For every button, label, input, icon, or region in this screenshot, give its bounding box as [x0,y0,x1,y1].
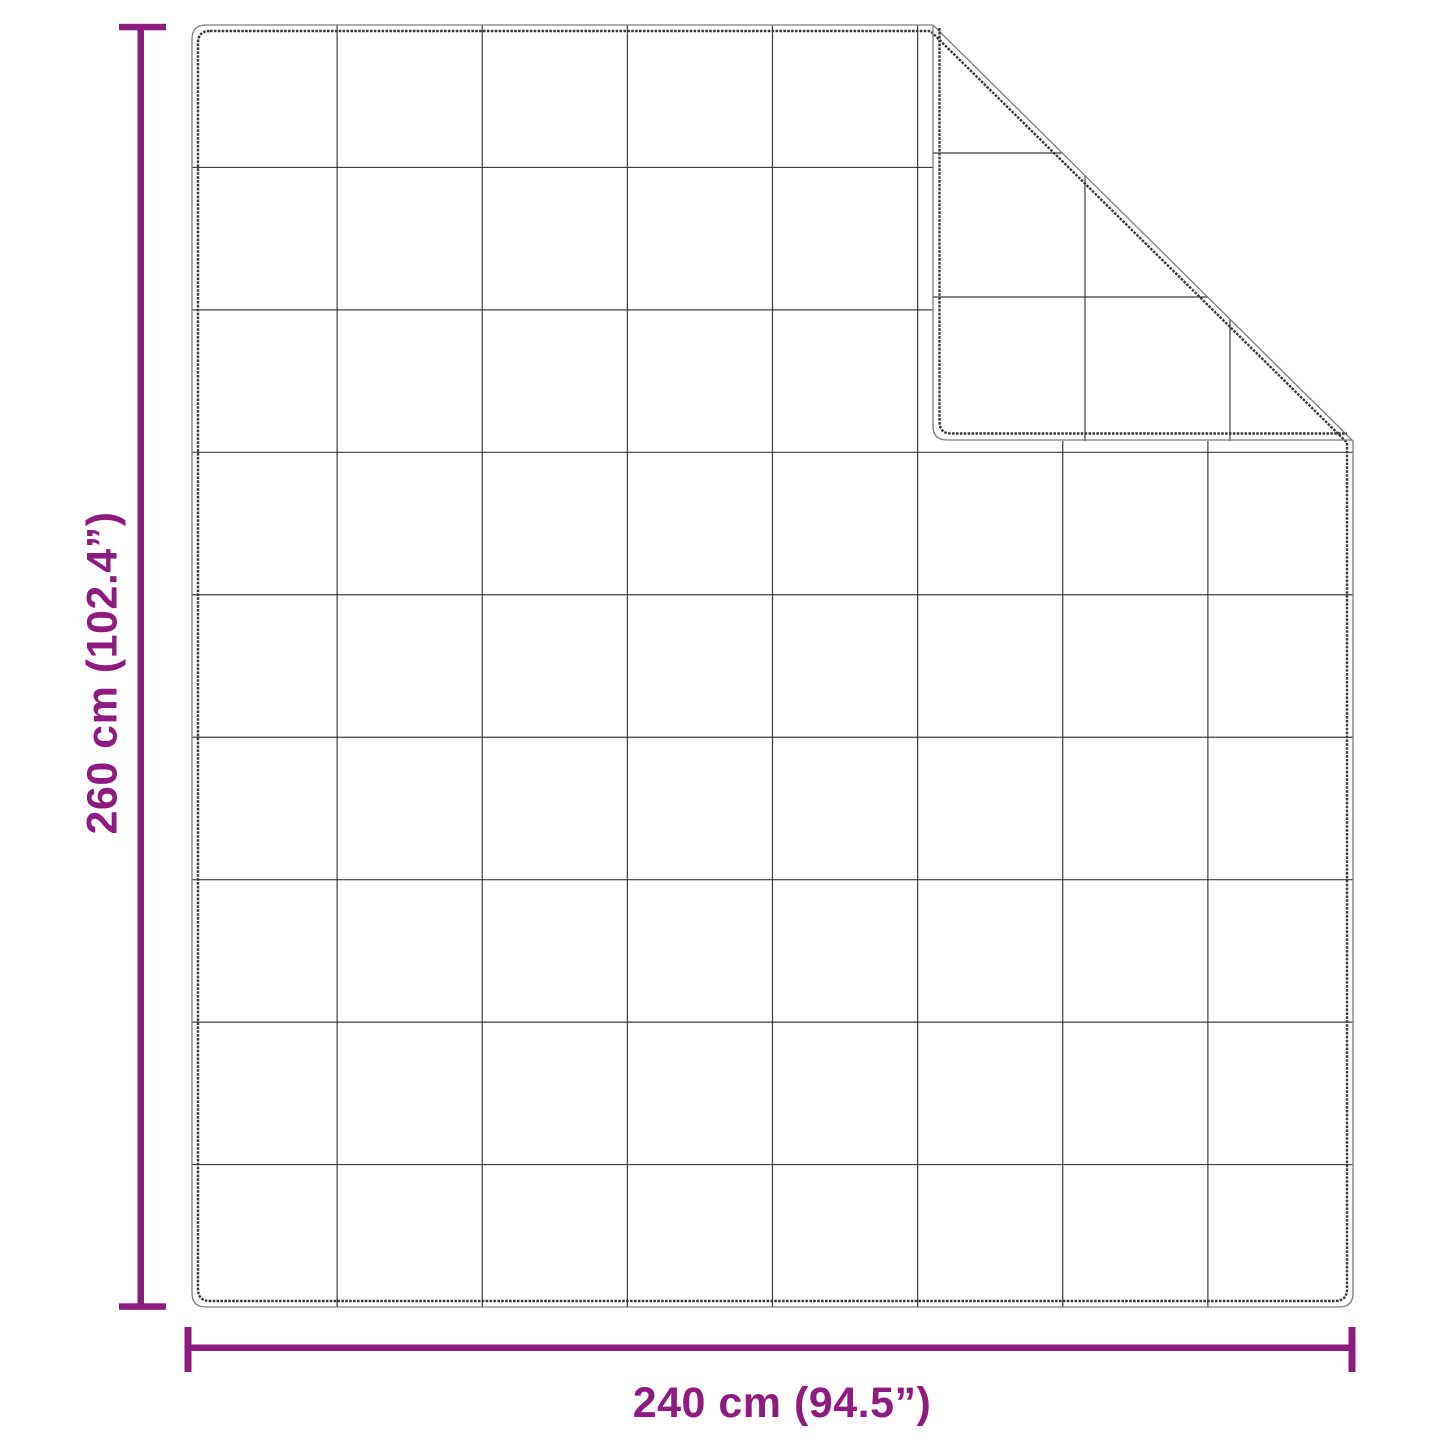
width-dimension-right-cap [1349,1327,1356,1372]
height-dimension-line [138,25,145,1308]
width-dimension-line [187,1345,1353,1352]
quilt-grid-front [192,25,1353,1307]
height-dimension-bottom-cap [119,1303,166,1310]
width-dimension-label: 240 cm (94.5”) [633,1379,932,1427]
width-dimension-left-cap [185,1327,192,1372]
height-dimension-top-cap [119,24,166,31]
diagram-canvas: 260 cm (102.4”) 240 cm (94.5”) [0,0,1445,1445]
height-dimension: 260 cm (102.4”) [78,24,166,1310]
fold-flap-edge-stitch [940,28,1348,434]
blanket-dimension-diagram: 260 cm (102.4”) 240 cm (94.5”) [0,0,1445,1445]
width-dimension: 240 cm (94.5”) [185,1327,1356,1427]
height-dimension-label: 260 cm (102.4”) [78,511,126,834]
